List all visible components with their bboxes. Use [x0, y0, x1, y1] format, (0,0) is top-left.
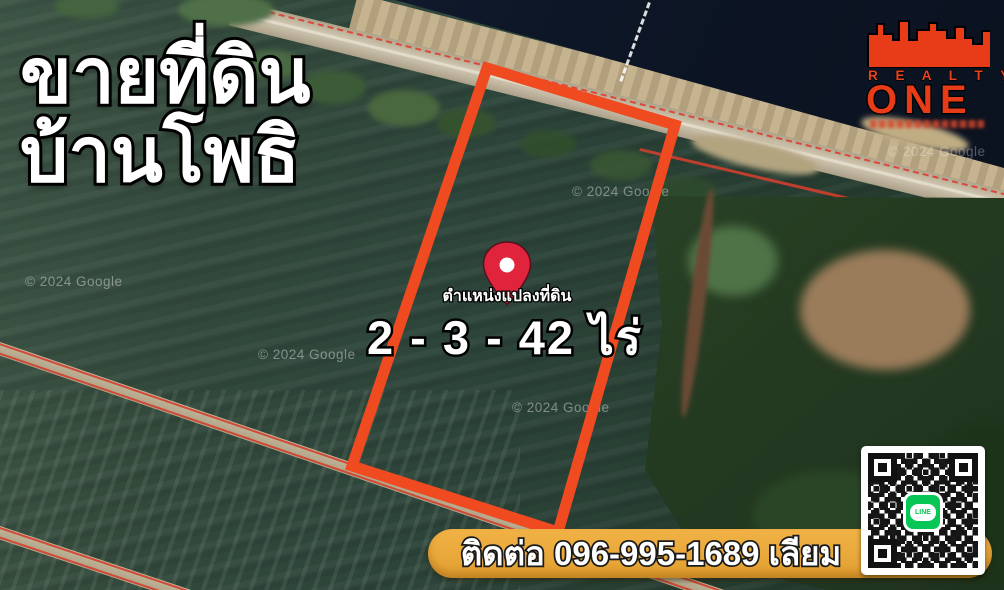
line-app-icon: LINE — [903, 492, 943, 532]
dirt-patch — [800, 250, 970, 370]
headline-line2: บ้านโพธิ — [20, 115, 311, 194]
tree-clump — [590, 150, 652, 180]
qr-finder — [868, 539, 897, 568]
line-label: LINE — [910, 504, 936, 521]
line-qr-code: LINE — [861, 446, 985, 575]
map-watermark: © 2024 Google — [888, 144, 986, 159]
logo-one-text: ONE — [866, 80, 974, 120]
contact-text: ติดต่อ 096-995-1689 เลียม — [436, 529, 866, 578]
logo-tagline-blur — [870, 120, 984, 128]
qr-finder — [949, 453, 978, 482]
realty-one-logo: R E A L T Y ONE — [856, 12, 998, 130]
building-skyline-icon — [866, 18, 990, 68]
tree-clump — [436, 108, 496, 138]
qr-finder — [868, 453, 897, 482]
land-area-text: 2 - 3 - 42 ไร่ — [320, 300, 690, 375]
tree-clump — [520, 130, 576, 158]
headline-line1: ขายที่ดิน — [20, 36, 311, 115]
map-watermark: © 2024 Google — [572, 184, 670, 199]
map-watermark: © 2024 Google — [25, 274, 123, 289]
map-watermark: © 2024 Google — [512, 400, 610, 415]
poster-canvas: © 2024 Google © 2024 Google © 2024 Googl… — [0, 0, 1004, 590]
headline: ขายที่ดิน บ้านโพธิ — [20, 36, 311, 194]
tree-clump — [368, 90, 440, 126]
